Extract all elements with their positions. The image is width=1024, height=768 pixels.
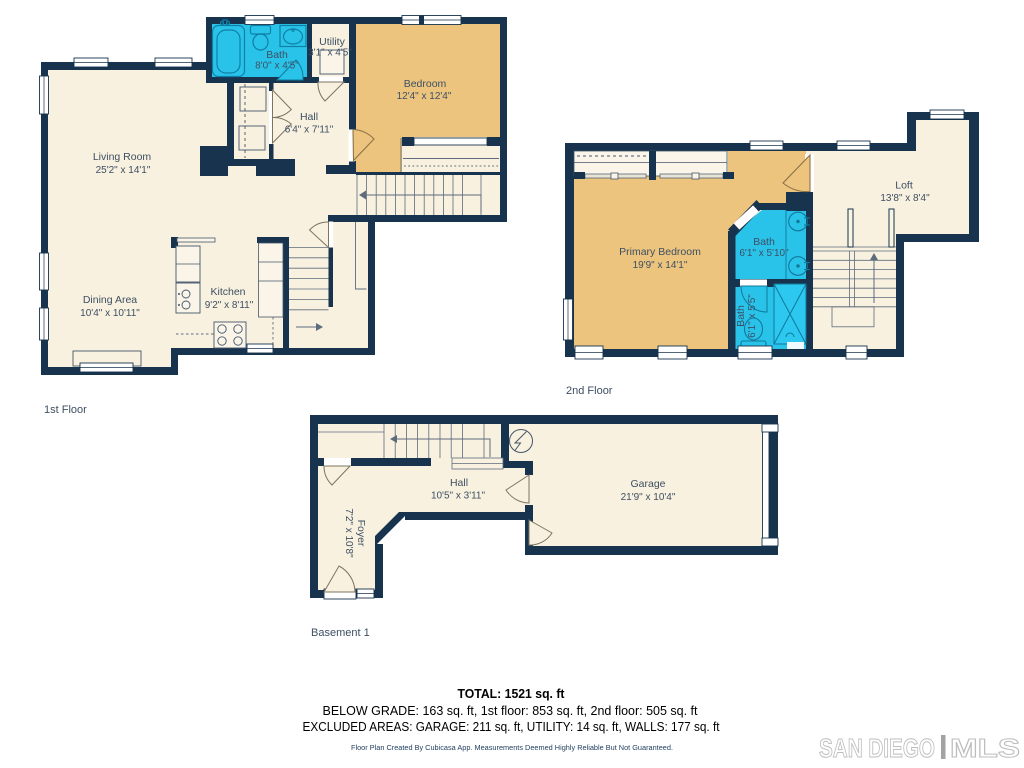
svg-text:Primary Bedroom: Primary Bedroom: [619, 246, 701, 258]
svg-text:BELOW GRADE: 163 sq. ft, 1st f: BELOW GRADE: 163 sq. ft, 1st floor: 853 …: [323, 703, 698, 718]
svg-text:Hall: Hall: [450, 477, 468, 489]
svg-text:Basement 1: Basement 1: [311, 627, 370, 639]
svg-text:Hall: Hall: [300, 111, 318, 123]
svg-text:Floor Plan Created By Cubicasa: Floor Plan Created By Cubicasa App. Meas…: [351, 743, 673, 752]
svg-text:21'9" x 10'4": 21'9" x 10'4": [621, 492, 676, 503]
svg-text:Garage: Garage: [630, 478, 665, 490]
svg-text:Foyer: Foyer: [355, 520, 367, 547]
svg-text:Bath: Bath: [266, 49, 288, 61]
svg-text:1st Floor: 1st Floor: [44, 404, 87, 416]
svg-text:12'4" x 12'4": 12'4" x 12'4": [397, 91, 452, 102]
svg-text:Bath: Bath: [735, 305, 747, 327]
svg-text:7'2" x 10'8": 7'2" x 10'8": [343, 508, 354, 558]
svg-text:Living Room: Living Room: [93, 151, 152, 163]
svg-text:TOTAL: 1521 sq. ft: TOTAL: 1521 sq. ft: [458, 686, 566, 701]
svg-text:10'4" x 10'11": 10'4" x 10'11": [80, 308, 140, 319]
svg-text:2nd Floor: 2nd Floor: [566, 385, 613, 397]
svg-text:MLS: MLS: [950, 733, 1020, 763]
svg-text:Bath: Bath: [753, 236, 775, 248]
svg-text:8'0" x 4'5": 8'0" x 4'5": [255, 61, 299, 72]
svg-text:25'2" x 14'1": 25'2" x 14'1": [96, 165, 151, 176]
svg-text:Bedroom: Bedroom: [404, 78, 447, 90]
svg-text:Kitchen: Kitchen: [210, 286, 245, 298]
svg-text:Loft: Loft: [895, 180, 913, 192]
svg-text:6'4" x 7'11": 6'4" x 7'11": [285, 125, 334, 136]
svg-text:13'8" x 8'4": 13'8" x 8'4": [880, 193, 930, 204]
svg-text:EXCLUDED AREAS: GARAGE: 211 sq: EXCLUDED AREAS: GARAGE: 211 sq. ft, UTIL…: [303, 719, 720, 734]
svg-text:6'1" x 5'10": 6'1" x 5'10": [739, 248, 789, 259]
svg-text:SAN DIEGO: SAN DIEGO: [819, 733, 935, 763]
svg-text:6'1" x 5'5": 6'1" x 5'5": [747, 294, 758, 338]
svg-text:3'1" x 4'5": 3'1" x 4'5": [308, 48, 352, 59]
svg-text:Utility: Utility: [319, 36, 345, 48]
svg-text:9'2" x 8'11": 9'2" x 8'11": [205, 300, 254, 311]
svg-text:19'9" x 14'1": 19'9" x 14'1": [633, 260, 688, 271]
svg-text:Dining Area: Dining Area: [83, 294, 137, 306]
svg-text:10'5" x 3'11": 10'5" x 3'11": [431, 491, 486, 502]
